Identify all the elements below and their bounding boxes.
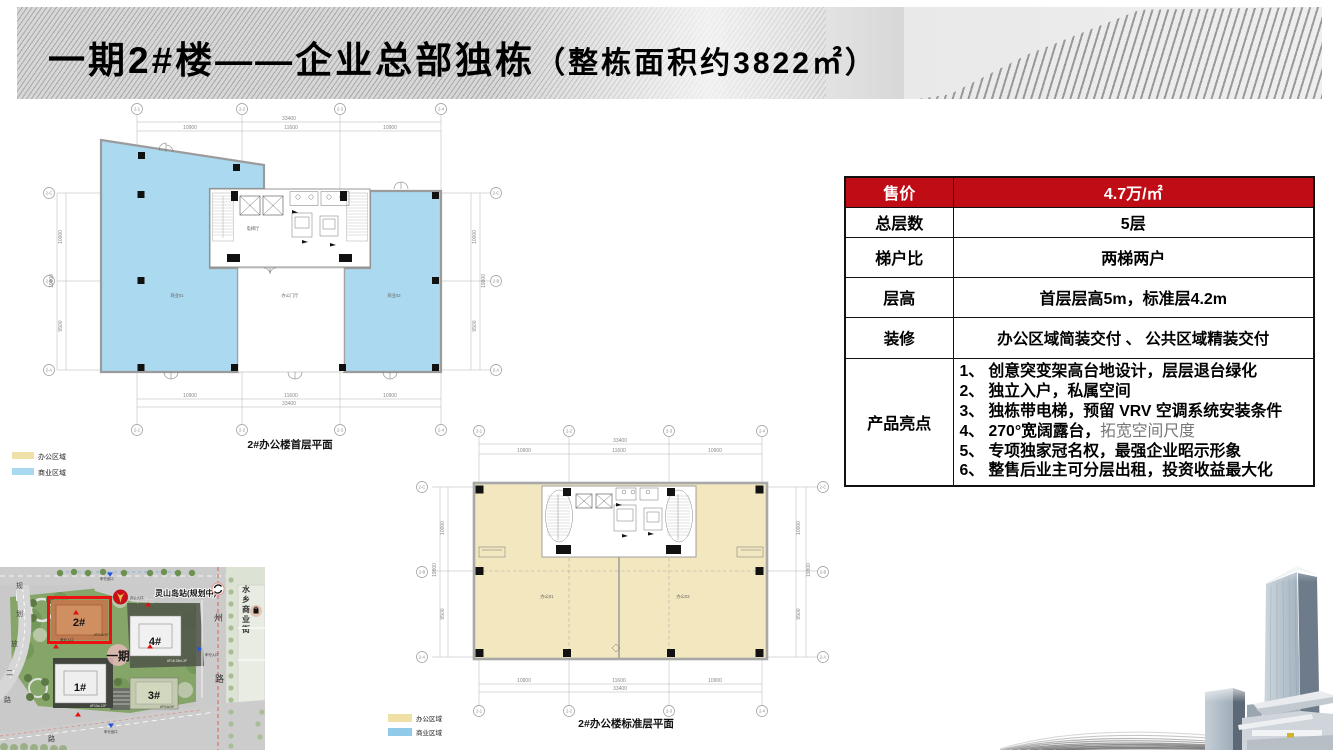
svg-text:9500: 9500 [472, 320, 478, 331]
svg-text:商业区域: 商业区域 [38, 468, 66, 477]
svg-text:10900: 10900 [383, 393, 397, 399]
svg-text:2-B: 2-B [419, 570, 426, 575]
svg-text:2-A: 2-A [493, 368, 500, 373]
svg-text:2-1: 2-1 [476, 709, 483, 714]
svg-text:规: 规 [16, 581, 23, 590]
svg-text:#F10a 12F: #F10a 12F [90, 704, 106, 708]
svg-text:33400: 33400 [613, 438, 627, 444]
svg-text:划: 划 [16, 609, 23, 618]
svg-text:3#: 3# [148, 690, 160, 702]
svg-text:2-3: 2-3 [666, 709, 673, 714]
svg-text:10000: 10000 [472, 230, 478, 244]
svg-text:水: 水 [241, 584, 251, 594]
svg-text:路: 路 [215, 673, 224, 684]
svg-text:商业入口: 商业入口 [60, 637, 74, 642]
svg-text:10000: 10000 [440, 521, 446, 535]
svg-text:一期: 一期 [107, 649, 130, 663]
svg-text:商业02: 商业02 [387, 292, 401, 299]
svg-text:2-C: 2-C [419, 485, 426, 490]
svg-text:商: 商 [242, 604, 250, 614]
svg-text:2-4: 2-4 [759, 429, 766, 434]
svg-text:灵山岛站(规划中): 灵山岛站(规划中) [154, 588, 217, 598]
svg-text:二: 二 [6, 670, 13, 677]
svg-text:10900: 10900 [708, 448, 722, 454]
svg-text:2-2: 2-2 [239, 107, 246, 112]
svg-text:2-B: 2-B [820, 570, 827, 575]
svg-text:10000: 10000 [58, 230, 64, 244]
svg-text:19800: 19800 [49, 274, 55, 288]
svg-text:2-3: 2-3 [337, 428, 344, 433]
svg-text:9500: 9500 [796, 608, 802, 619]
svg-text:车行出口: 车行出口 [100, 576, 114, 581]
svg-text:2-A: 2-A [46, 368, 53, 373]
svg-text:2-1: 2-1 [134, 107, 141, 112]
svg-text:放: 放 [11, 639, 18, 648]
svg-text:#F04a 5F: #F04a 5F [160, 705, 175, 709]
svg-text:33400: 33400 [282, 116, 296, 122]
svg-text:电梯厅: 电梯厅 [247, 225, 261, 232]
svg-text:10900: 10900 [517, 678, 531, 684]
svg-text:2-C: 2-C [820, 485, 827, 490]
svg-text:2-A: 2-A [419, 655, 426, 660]
svg-text:9500: 9500 [58, 320, 64, 331]
svg-text:10900: 10900 [708, 678, 722, 684]
svg-text:1#: 1# [74, 682, 86, 694]
svg-text:2-2: 2-2 [566, 709, 573, 714]
svg-text:11600: 11600 [612, 678, 626, 684]
svg-text:车行入口: 车行入口 [205, 652, 219, 657]
svg-text:办公区域: 办公区域 [38, 452, 66, 461]
svg-text:商业01: 商业01 [170, 292, 184, 299]
svg-text:路: 路 [4, 695, 11, 704]
svg-text:办公区域: 办公区域 [416, 714, 443, 723]
svg-text:2-2: 2-2 [566, 429, 573, 434]
svg-text:办公入口: 办公入口 [130, 595, 144, 600]
svg-text:2-1: 2-1 [476, 429, 483, 434]
svg-text:19800: 19800 [481, 274, 487, 288]
svg-text:10900: 10900 [183, 393, 197, 399]
svg-text:办公门厅: 办公门厅 [281, 292, 299, 299]
svg-text:#F18 25m 2F: #F18 25m 2F [167, 659, 187, 663]
svg-text:2-A: 2-A [820, 655, 827, 660]
svg-text:9500: 9500 [440, 608, 446, 619]
svg-text:路: 路 [48, 734, 55, 743]
svg-text:19800: 19800 [806, 563, 812, 577]
svg-text:2-C: 2-C [46, 191, 53, 196]
svg-text:11600: 11600 [284, 393, 298, 399]
svg-text:2-4: 2-4 [759, 709, 766, 714]
svg-text:#F04a 5F: #F04a 5F [94, 633, 109, 637]
svg-text:11600: 11600 [284, 125, 298, 131]
svg-text:19800: 19800 [432, 563, 438, 577]
svg-text:33400: 33400 [613, 686, 627, 692]
svg-text:业: 业 [242, 614, 250, 624]
svg-text:2-3: 2-3 [666, 429, 673, 434]
svg-text:2#办公楼标准层平面: 2#办公楼标准层平面 [578, 717, 674, 730]
svg-text:2-C: 2-C [493, 191, 500, 196]
svg-text:2-4: 2-4 [438, 107, 445, 112]
svg-text:33400: 33400 [282, 401, 296, 407]
svg-text:10900: 10900 [517, 448, 531, 454]
svg-text:2#办公楼首层平面: 2#办公楼首层平面 [247, 438, 333, 451]
svg-text:商业区域: 商业区域 [416, 728, 443, 737]
svg-text:车行出口: 车行出口 [104, 729, 118, 734]
svg-text:州: 州 [214, 613, 223, 623]
svg-text:2-3: 2-3 [337, 107, 344, 112]
svg-text:10900: 10900 [383, 125, 397, 131]
svg-text:10000: 10000 [796, 521, 802, 535]
svg-text:2-1: 2-1 [134, 428, 141, 433]
svg-text:2-2: 2-2 [239, 428, 246, 433]
svg-text:10900: 10900 [183, 125, 197, 131]
svg-text:办公01: 办公01 [540, 593, 554, 600]
svg-text:11600: 11600 [612, 448, 626, 454]
svg-text:2#: 2# [73, 617, 85, 629]
svg-text:乡: 乡 [242, 594, 250, 604]
svg-text:2-B: 2-B [493, 279, 500, 284]
svg-text:办公02: 办公02 [676, 593, 690, 600]
